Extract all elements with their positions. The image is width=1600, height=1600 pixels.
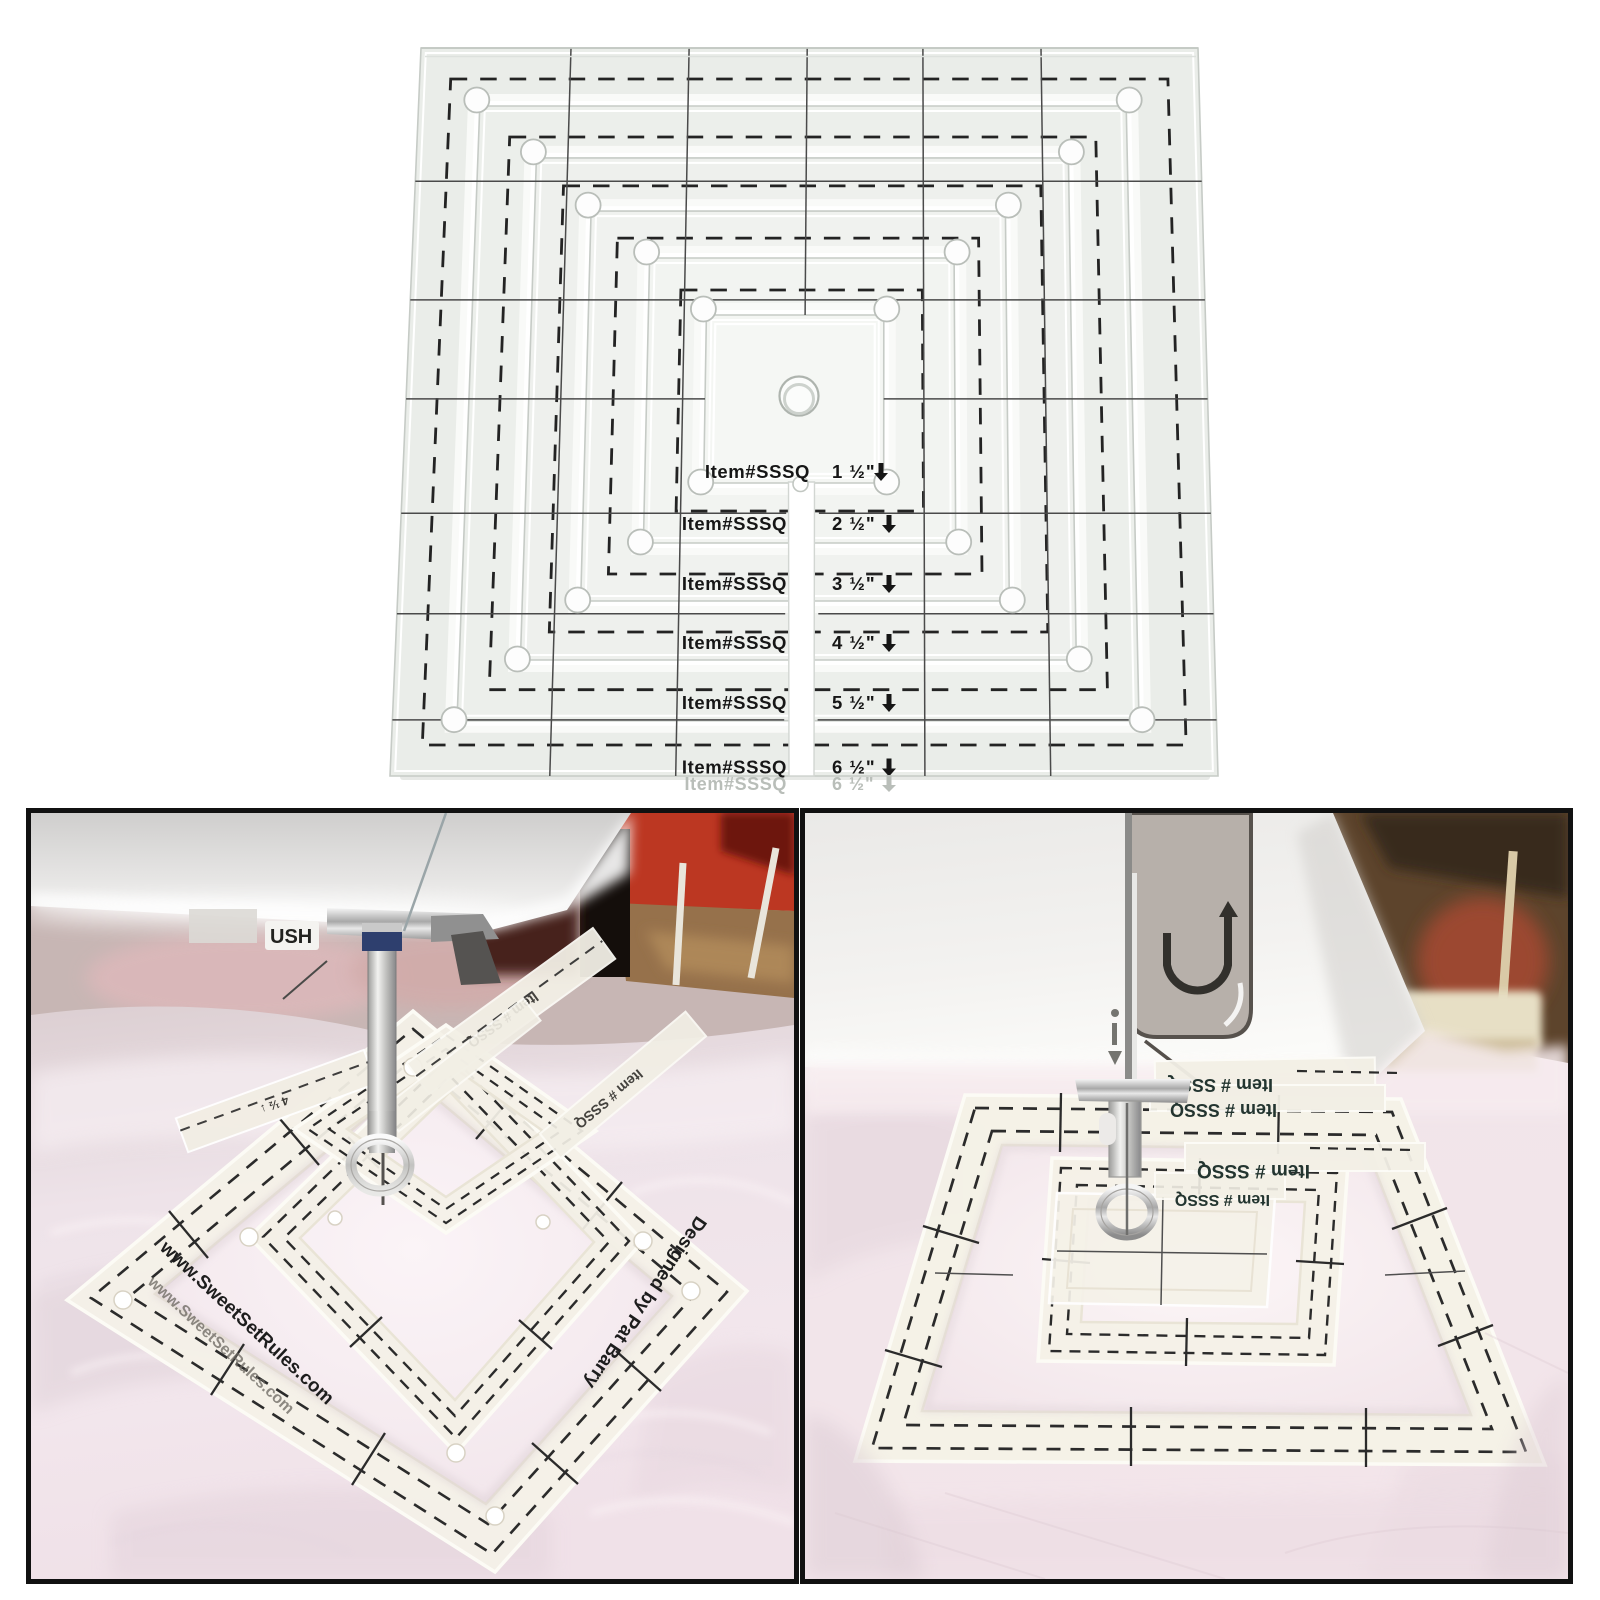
svg-text:Item#SSSQ: Item#SSSQ [682, 573, 787, 594]
svg-text:Item#SSSQ: Item#SSSQ [682, 632, 787, 653]
svg-text:1 ½": 1 ½" [832, 461, 876, 482]
svg-text:4 ½": 4 ½" [832, 632, 876, 653]
svg-text:Item#SSSQ: Item#SSSQ [682, 513, 787, 534]
svg-text:Item # SSSQ: Item # SSSQ [1170, 1100, 1277, 1120]
svg-text:3 ½": 3 ½" [832, 573, 876, 594]
svg-text:Item # SSSQ: Item # SSSQ [1175, 1191, 1270, 1208]
svg-text:6 ½": 6 ½" [832, 774, 875, 794]
svg-text:5 ½": 5 ½" [832, 692, 876, 713]
svg-text:Item # SSSQ: Item # SSSQ [1197, 1160, 1310, 1181]
svg-text:Item#SSSQ: Item#SSSQ [705, 461, 810, 482]
svg-text:Item#SSSQ: Item#SSSQ [682, 692, 787, 713]
svg-text:2 ½": 2 ½" [832, 513, 876, 534]
svg-text:Item#SSSQ: Item#SSSQ [685, 774, 787, 794]
svg-text:USH: USH [270, 926, 312, 948]
